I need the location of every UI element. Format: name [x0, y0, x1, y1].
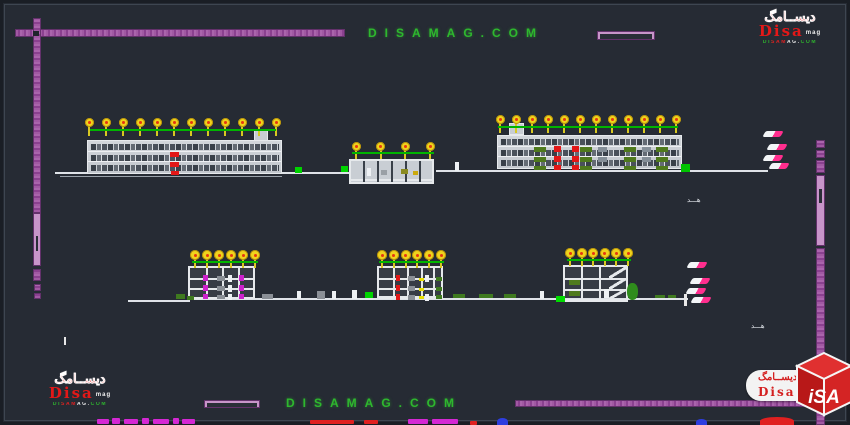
stair-flight	[609, 278, 627, 289]
tree-core	[579, 118, 582, 121]
clipped-text-fragment	[310, 420, 354, 424]
tree-canopy	[238, 250, 248, 260]
site-mark	[352, 290, 357, 299]
tree-canopy	[672, 115, 681, 124]
tree-canopy	[608, 115, 617, 124]
window-band	[500, 139, 679, 145]
tree-core	[241, 121, 244, 124]
detail-mark	[203, 275, 208, 281]
tree-core	[627, 118, 630, 121]
roof-tower	[254, 130, 268, 141]
site-mark	[684, 294, 687, 306]
clipped-text-fragment	[153, 419, 169, 424]
site-mark	[655, 295, 665, 298]
tree-core	[440, 254, 443, 257]
clipped-text-fragment	[124, 419, 138, 424]
window-band	[90, 144, 279, 150]
clipped-text-fragment	[497, 418, 508, 425]
tree-canopy	[426, 142, 435, 151]
detail-mark	[598, 147, 607, 152]
tree-canopy	[136, 118, 145, 127]
tree-canopy	[255, 118, 264, 127]
site-mark	[317, 291, 325, 299]
border-bar	[515, 400, 818, 407]
tree-core	[659, 118, 662, 121]
detail-mark	[569, 280, 580, 285]
tree-core	[515, 118, 518, 121]
disamag-logo-top-right: ديســامگ Disamag DISAMAG.COM	[744, 10, 836, 45]
tree-core	[381, 254, 384, 257]
tree-canopy	[226, 250, 236, 260]
isa-cube-logo: iSA	[795, 351, 850, 423]
tree-canopy	[202, 250, 212, 260]
site-mark	[297, 291, 301, 299]
tree-canopy	[187, 118, 196, 127]
section-label-bottom: هـــد	[751, 322, 765, 330]
column	[599, 267, 601, 300]
watermark-bottom: DISAMAG.COM	[286, 396, 462, 410]
site-mark	[176, 294, 185, 299]
site-mark	[504, 294, 516, 298]
tree-canopy	[528, 115, 537, 124]
tree-canopy	[592, 115, 601, 124]
tree-canopy	[102, 118, 111, 127]
site-mark	[604, 289, 609, 298]
detail-mark	[656, 147, 668, 152]
flag-symbol	[762, 155, 783, 161]
detail-mark	[401, 169, 408, 174]
tree-canopy	[544, 115, 553, 124]
site-mark	[668, 295, 676, 298]
detail-mark	[239, 294, 244, 299]
building-section-right	[563, 265, 628, 302]
ground-line	[128, 300, 190, 302]
detail-mark	[228, 294, 232, 300]
border-bar	[816, 150, 825, 158]
tree-core	[254, 254, 257, 257]
clipped-text-fragment	[470, 421, 477, 425]
tree-core	[429, 145, 432, 148]
clipped-text-fragment	[432, 419, 458, 424]
detail-mark	[569, 291, 580, 296]
tree-canopy	[170, 118, 179, 127]
stair-flight	[609, 289, 627, 299]
tree-canopy	[401, 250, 411, 260]
tree-core	[194, 254, 197, 257]
detail-mark	[572, 146, 579, 152]
tree-core	[122, 121, 125, 124]
hedge-line	[352, 152, 434, 154]
tree-core	[275, 121, 278, 124]
building-pavilion-center	[349, 159, 434, 184]
hedge-line	[567, 259, 631, 261]
clipped-text-fragment	[182, 419, 195, 424]
detail-mark	[419, 278, 424, 281]
detail-mark	[436, 287, 442, 291]
border-bar-inset	[36, 236, 38, 251]
tree-canopy	[190, 250, 200, 260]
detail-mark	[171, 171, 179, 175]
tree-trunk	[355, 149, 357, 159]
tree-core	[595, 118, 598, 121]
tree-canopy	[560, 115, 569, 124]
border-bar	[33, 269, 41, 281]
hedge-line	[90, 129, 276, 131]
tree-canopy	[85, 118, 94, 127]
site-mark	[365, 292, 373, 298]
tree-canopy	[496, 115, 505, 124]
detail-mark	[203, 285, 208, 291]
detail-mark	[396, 275, 400, 281]
detail-mark	[203, 294, 208, 299]
tree-canopy	[377, 250, 387, 260]
disamag-url: DISAMAG.COM	[34, 402, 126, 407]
tree-canopy	[153, 118, 162, 127]
tree-canopy	[512, 115, 521, 124]
detail-mark	[217, 295, 225, 299]
detail-mark	[419, 296, 424, 299]
detail-mark	[656, 166, 668, 170]
tree-canopy	[250, 250, 260, 260]
border-bar-inset	[207, 403, 257, 407]
tree-canopy	[424, 250, 434, 260]
tree-core	[580, 252, 583, 255]
tree-trunk	[404, 149, 406, 159]
detail-mark	[580, 147, 592, 152]
column	[206, 268, 208, 297]
detail-mark	[436, 295, 442, 299]
tree-canopy	[611, 248, 621, 258]
border-bar	[816, 140, 825, 148]
detail-mark	[554, 165, 561, 170]
detail-mark	[381, 170, 387, 175]
detail-mark	[217, 276, 225, 281]
building-section-left	[188, 266, 255, 299]
tree-core	[242, 254, 245, 257]
border-bar-inset	[819, 189, 822, 203]
tree-core	[218, 254, 221, 257]
tree-canopy	[389, 250, 399, 260]
detail-mark	[408, 295, 415, 300]
building-elevation-left	[87, 140, 282, 174]
site-mark	[341, 166, 348, 172]
detail-mark	[396, 285, 400, 291]
tree-core	[230, 254, 233, 257]
clipped-text-fragment	[696, 419, 707, 425]
detail-mark	[419, 288, 424, 291]
floor-slab	[565, 299, 626, 301]
window-band	[90, 165, 279, 171]
tree-canopy	[238, 118, 247, 127]
watermark-top: DISAMAG.COM	[368, 26, 544, 40]
column	[377, 161, 379, 182]
stair-flight	[609, 267, 627, 278]
detail-mark	[239, 285, 244, 291]
border-bar	[816, 175, 825, 246]
border-bar	[597, 31, 655, 40]
building-floor	[88, 141, 281, 152]
detail-mark	[598, 157, 607, 162]
detail-mark	[408, 276, 415, 281]
site-mark	[627, 283, 638, 300]
tree-core	[206, 254, 209, 257]
tree-core	[173, 121, 176, 124]
tree-canopy	[352, 142, 361, 151]
detail-mark	[534, 147, 546, 152]
detail-mark	[642, 147, 651, 152]
tree-core	[88, 121, 91, 124]
site-mark	[33, 31, 39, 36]
border-bar	[33, 213, 41, 266]
site-mark	[295, 167, 302, 173]
cad-drawing-canvas: DISAMAG.COM DISAMAG.COM هـــد هـــد ديسـ…	[0, 0, 850, 425]
flag-symbol	[686, 262, 707, 268]
tree-core	[531, 118, 534, 121]
tree-canopy	[576, 115, 585, 124]
building-section-middle	[377, 266, 443, 298]
tree-canopy	[624, 115, 633, 124]
tree-canopy	[221, 118, 230, 127]
detail-mark	[170, 152, 179, 157]
clipped-text-fragment	[760, 417, 794, 425]
tree-canopy	[436, 250, 446, 260]
detail-mark	[170, 162, 179, 167]
column	[391, 161, 393, 182]
site-mark	[332, 291, 336, 299]
tree-canopy	[204, 118, 213, 127]
column	[581, 267, 583, 300]
tree-canopy	[401, 142, 410, 151]
tree-canopy	[656, 115, 665, 124]
tree-core	[611, 118, 614, 121]
border-bar	[204, 400, 260, 408]
detail-mark	[554, 156, 561, 162]
detail-mark	[580, 157, 592, 162]
site-mark	[455, 162, 459, 171]
logo-suffix: mag	[806, 30, 821, 36]
tree-canopy	[588, 248, 598, 258]
tree-core	[156, 121, 159, 124]
detail-mark	[413, 171, 418, 175]
tree-core	[547, 118, 550, 121]
tree-trunk	[429, 149, 431, 159]
site-mark	[187, 296, 194, 300]
building-floor	[88, 162, 281, 173]
column	[419, 161, 421, 182]
building-elevation-right	[497, 135, 682, 169]
detail-mark	[534, 166, 546, 170]
detail-mark	[624, 147, 636, 152]
detail-mark	[624, 166, 636, 170]
tree-canopy	[214, 250, 224, 260]
detail-mark	[624, 157, 636, 162]
tree-core	[379, 145, 382, 148]
flag-symbol	[768, 163, 789, 169]
border-bar	[34, 293, 41, 299]
tree-canopy	[565, 248, 575, 258]
logo-name: Disa	[759, 22, 804, 40]
detail-mark	[408, 286, 415, 291]
detail-mark	[425, 294, 429, 301]
column	[363, 161, 365, 182]
cad-layer	[0, 0, 850, 425]
site-mark	[64, 337, 66, 345]
column	[407, 268, 409, 296]
border-bar	[15, 29, 345, 37]
tree-core	[675, 118, 678, 121]
tree-core	[643, 118, 646, 121]
clipped-text-fragment	[97, 419, 109, 424]
column	[222, 268, 224, 297]
ground-line	[436, 170, 768, 172]
border-bar	[33, 18, 41, 213]
hedge-line	[379, 261, 444, 263]
column	[433, 268, 435, 296]
disamag-wordmark: Disamag	[744, 24, 836, 40]
tree-canopy	[376, 142, 385, 151]
detail-mark	[572, 156, 579, 162]
clipped-text-fragment	[173, 418, 179, 424]
tree-core	[404, 254, 407, 257]
tree-core	[404, 145, 407, 148]
detail-mark	[228, 285, 232, 292]
tree-canopy	[600, 248, 610, 258]
building-floor	[498, 136, 681, 147]
detail-mark	[228, 275, 232, 282]
column	[393, 268, 395, 296]
tree-canopy	[119, 118, 128, 127]
detail-mark	[425, 275, 429, 282]
site-mark	[262, 294, 273, 299]
tree-core	[499, 118, 502, 121]
tree-canopy	[640, 115, 649, 124]
tree-core	[569, 252, 572, 255]
border-bar	[34, 284, 41, 291]
hedge-line	[498, 126, 678, 128]
section-label-top: هـــد	[687, 196, 701, 204]
tree-canopy	[623, 248, 633, 258]
tree-core	[190, 121, 193, 124]
disamag-wordmark: Disamag	[34, 386, 126, 402]
tree-core	[416, 254, 419, 257]
tree-canopy	[272, 118, 281, 127]
flag-symbol	[762, 131, 783, 137]
logo-suffix: mag	[96, 392, 111, 398]
site-mark	[453, 294, 465, 298]
detail-mark	[239, 275, 244, 281]
detail-mark	[436, 277, 442, 281]
tree-canopy	[577, 248, 587, 258]
tree-core	[207, 121, 210, 124]
tree-core	[563, 118, 566, 121]
window-band	[90, 155, 279, 161]
tree-core	[355, 145, 358, 148]
detail-mark	[534, 157, 546, 162]
column	[421, 268, 423, 296]
badge-name: Disa	[758, 385, 796, 399]
tree-core	[392, 254, 395, 257]
clipped-text-fragment	[112, 418, 120, 424]
tree-core	[139, 121, 142, 124]
tree-core	[428, 254, 431, 257]
detail-mark	[580, 166, 592, 170]
detail-mark	[656, 157, 668, 162]
flag-symbol	[690, 297, 711, 303]
column	[238, 268, 240, 297]
detail-mark	[572, 165, 579, 170]
tree-core	[592, 252, 595, 255]
site-mark	[540, 291, 544, 299]
tree-trunk	[380, 149, 382, 159]
detail-mark	[554, 146, 561, 152]
clipped-text-fragment	[408, 419, 428, 424]
clipped-text-fragment	[364, 420, 378, 424]
hedge-line	[192, 261, 258, 263]
detail-mark	[367, 168, 371, 176]
logo-name: Disa	[49, 384, 94, 402]
flag-symbol	[766, 144, 787, 150]
disamag-url: DISAMAG.COM	[744, 40, 836, 45]
tree-core	[603, 252, 606, 255]
detail-mark	[396, 294, 400, 300]
tree-core	[258, 121, 261, 124]
building-floor	[88, 152, 281, 163]
tree-core	[627, 252, 630, 255]
site-mark	[681, 164, 690, 172]
disamag-logo-bottom-left: ديســامگ Disamag DISAMAG.COM	[34, 372, 126, 407]
site-mark	[479, 294, 493, 298]
clipped-text-fragment	[142, 418, 149, 424]
detail-mark	[217, 286, 225, 291]
border-bar-inset	[600, 34, 652, 39]
flag-symbol	[689, 278, 710, 284]
flag-symbol	[685, 288, 706, 294]
tree-canopy	[412, 250, 422, 260]
tree-core	[224, 121, 227, 124]
site-mark	[556, 296, 565, 302]
cube-letters: iSA	[808, 387, 840, 408]
tree-core	[105, 121, 108, 124]
ground-line	[60, 176, 282, 177]
border-bar	[816, 160, 825, 173]
tree-core	[615, 252, 618, 255]
detail-mark	[642, 157, 651, 162]
